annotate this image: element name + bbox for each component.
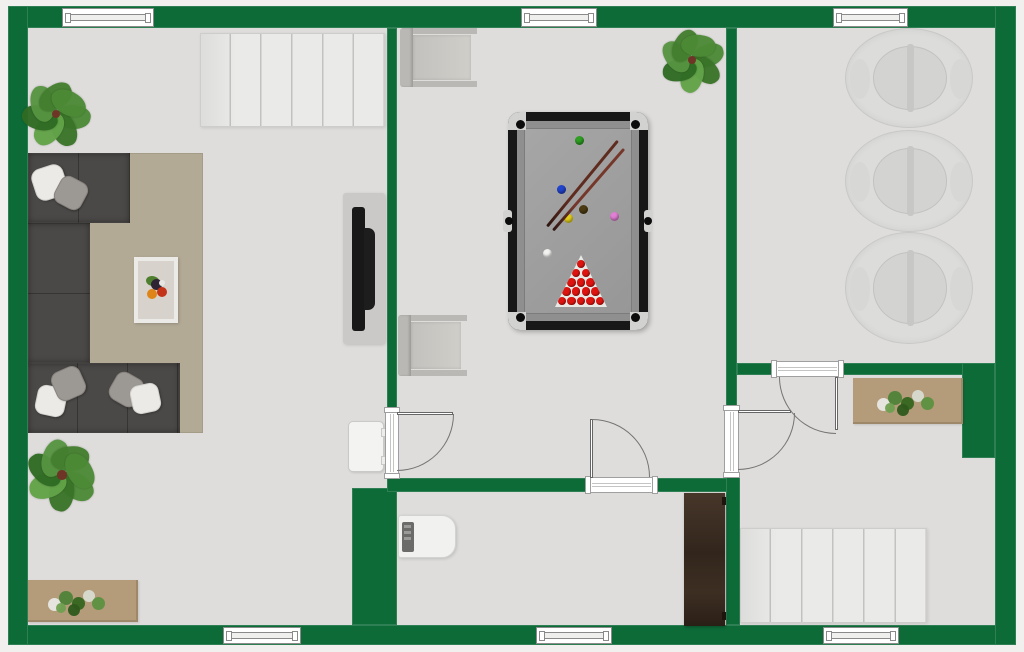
sideboard-hallway xyxy=(853,378,963,424)
window-bottom-right-glazing xyxy=(829,632,893,639)
window-top-middle-glazing xyxy=(527,14,591,21)
armchair-gameroom-top-arm xyxy=(413,28,477,34)
round-chair-wing xyxy=(850,267,870,312)
window-top-right-jamb xyxy=(899,13,905,23)
mini-plant xyxy=(56,603,66,613)
boiler-appliance xyxy=(398,515,456,558)
wardrobe-hinge xyxy=(722,497,726,505)
pool-table xyxy=(508,112,648,330)
window-bottom-left xyxy=(223,627,301,644)
round-chair-wing xyxy=(850,59,870,99)
mini-plant xyxy=(885,403,895,413)
window-bottom-left-glazing xyxy=(229,632,295,639)
mini-plant xyxy=(68,604,80,616)
window-bottom-right xyxy=(823,627,899,644)
door-gameroom-to-hallway-frame xyxy=(724,406,739,477)
armchair-gameroom-bottom-arm xyxy=(411,315,467,321)
door-living-to-gameroom-jamb xyxy=(384,473,400,479)
armchair-gameroom-bottom-back xyxy=(398,315,411,376)
billiard-ball xyxy=(575,136,584,145)
wall-gameroom-south-left xyxy=(387,478,590,492)
coffee-table xyxy=(134,257,178,323)
window-bottom-middle-jamb xyxy=(539,631,545,641)
round-chair xyxy=(845,232,973,344)
window-top-left-glazing xyxy=(68,14,148,21)
red-ball xyxy=(586,297,595,306)
wardrobe-hinge xyxy=(722,612,726,620)
window-top-right-jamb xyxy=(836,13,842,23)
wall-rightroom-south-left xyxy=(737,363,775,375)
sideboard-living xyxy=(28,580,138,622)
red-ball xyxy=(582,287,591,296)
billiard-ball xyxy=(543,249,552,258)
window-bottom-left-jamb xyxy=(292,631,298,641)
armchair-gameroom-bottom-seat xyxy=(411,322,461,369)
round-chair-wing xyxy=(950,267,970,312)
billiard-ball xyxy=(610,212,619,221)
window-top-left-jamb xyxy=(145,13,151,23)
window-bottom-middle-jamb xyxy=(603,631,609,641)
wall-game-right-upper xyxy=(726,28,737,410)
pocket-hole xyxy=(516,120,525,129)
window-top-left-jamb xyxy=(65,13,71,23)
round-chair-wing xyxy=(950,162,970,203)
door-rightroom-to-hallway-jamb xyxy=(771,360,777,378)
fruit-orange xyxy=(147,289,157,299)
window-bottom-right-jamb xyxy=(826,631,832,641)
red-ball xyxy=(577,278,586,287)
billiard-ball xyxy=(579,205,588,214)
pocket-hole xyxy=(644,217,652,225)
round-chair-seam xyxy=(907,250,914,326)
door-gameroom-to-hallway-frame-line xyxy=(730,412,734,471)
window-bottom-middle xyxy=(536,627,612,644)
wall-right-block xyxy=(962,363,995,458)
door-rightroom-to-hallway-frame-line xyxy=(778,367,837,371)
side-pocket xyxy=(503,210,512,232)
round-chair-seam xyxy=(907,44,914,112)
corner-pocket xyxy=(508,112,526,130)
window-bottom-right-jamb xyxy=(890,631,896,641)
window-top-middle-jamb xyxy=(588,13,594,23)
sideboard-hallway-plants xyxy=(877,388,937,416)
appliance-knob xyxy=(404,531,411,534)
outer-wall-right xyxy=(995,6,1016,645)
round-chair-wing xyxy=(850,162,870,203)
round-chair xyxy=(845,28,973,128)
armchair-gameroom-bottom-arm xyxy=(411,370,467,376)
red-ball xyxy=(577,297,586,306)
appliance-control-panel xyxy=(402,522,414,552)
door-rightroom-to-hallway-frame xyxy=(772,361,843,377)
plant-center xyxy=(688,56,696,64)
mini-plant xyxy=(897,404,909,416)
armchair-gameroom-top-back xyxy=(400,28,413,87)
mini-plant xyxy=(921,397,934,410)
sideboard-living-plants xyxy=(48,588,108,616)
red-ball xyxy=(572,287,581,296)
armchair-gameroom-top-arm xyxy=(413,81,477,87)
round-chair-wing xyxy=(950,59,970,99)
window-top-right xyxy=(833,8,908,27)
round-chair xyxy=(845,130,973,232)
mini-plant xyxy=(92,597,105,610)
window-bottom-left-jamb xyxy=(226,631,232,641)
door-gameroom-to-boilerroom-frame xyxy=(586,477,657,493)
sofa-seat-left xyxy=(28,223,90,363)
potted-plant-living-bottom xyxy=(29,442,95,508)
potted-plant-living-top xyxy=(25,83,87,145)
fruit-apple xyxy=(157,287,167,297)
appliance-knob xyxy=(404,525,411,528)
fruit-bowl-highlight xyxy=(159,280,165,286)
wardrobe xyxy=(684,493,725,626)
plant-center xyxy=(57,470,66,479)
potted-plant-gameroom xyxy=(663,31,721,89)
wall-right-lower xyxy=(726,475,740,625)
door-living-to-gameroom-frame-line xyxy=(390,414,394,472)
tv-screen-edge xyxy=(364,228,375,310)
red-ball xyxy=(567,297,576,306)
side-pocket xyxy=(644,210,653,232)
pocket-hole xyxy=(516,313,525,322)
floor-plan xyxy=(0,0,1024,652)
pocket-hole xyxy=(631,313,640,322)
door-gameroom-to-boilerroom-jamb xyxy=(652,476,658,494)
armchair-gameroom-top xyxy=(400,28,477,87)
door-gameroom-to-hallway-jamb xyxy=(723,472,740,478)
door-gameroom-to-boilerroom-frame-line xyxy=(592,483,651,487)
pocket-hole xyxy=(631,120,640,129)
door-gameroom-to-boilerroom-jamb xyxy=(585,476,591,494)
appliance-knob xyxy=(404,537,411,540)
window-top-left xyxy=(62,8,154,27)
wall-living-game xyxy=(387,28,397,412)
window-top-right-glazing xyxy=(839,14,902,21)
window-bottom-middle-glazing xyxy=(542,632,606,639)
billiard-ball xyxy=(557,185,566,194)
radiator xyxy=(348,421,384,472)
staircase-lower xyxy=(740,528,927,623)
door-rightroom-to-hallway-jamb xyxy=(838,360,844,378)
tv-unit xyxy=(343,193,385,344)
window-top-middle xyxy=(521,8,597,27)
armchair-gameroom-top-seat xyxy=(413,35,471,80)
window-top-middle-jamb xyxy=(524,13,530,23)
wall-chimney-block xyxy=(352,488,397,625)
staircase-upper xyxy=(200,33,385,127)
pocket-hole xyxy=(505,217,513,225)
round-chair-seam xyxy=(907,146,914,215)
armchair-gameroom-bottom xyxy=(398,315,467,376)
